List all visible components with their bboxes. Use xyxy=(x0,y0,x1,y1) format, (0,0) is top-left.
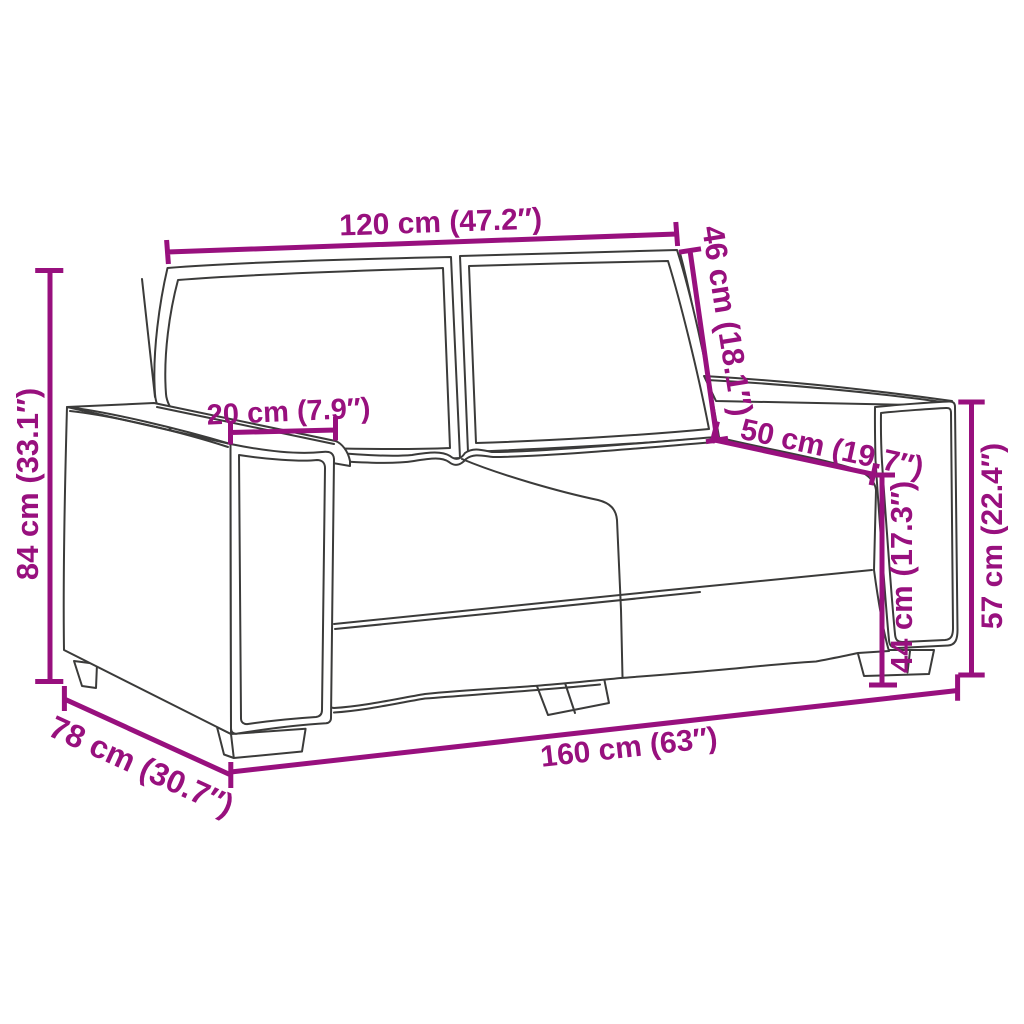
svg-text:57 cm (22.4″): 57 cm (22.4″) xyxy=(976,443,1009,629)
svg-text:84 cm (33.1″): 84 cm (33.1″) xyxy=(10,388,45,580)
svg-text:44 cm (17.3″): 44 cm (17.3″) xyxy=(884,481,919,673)
